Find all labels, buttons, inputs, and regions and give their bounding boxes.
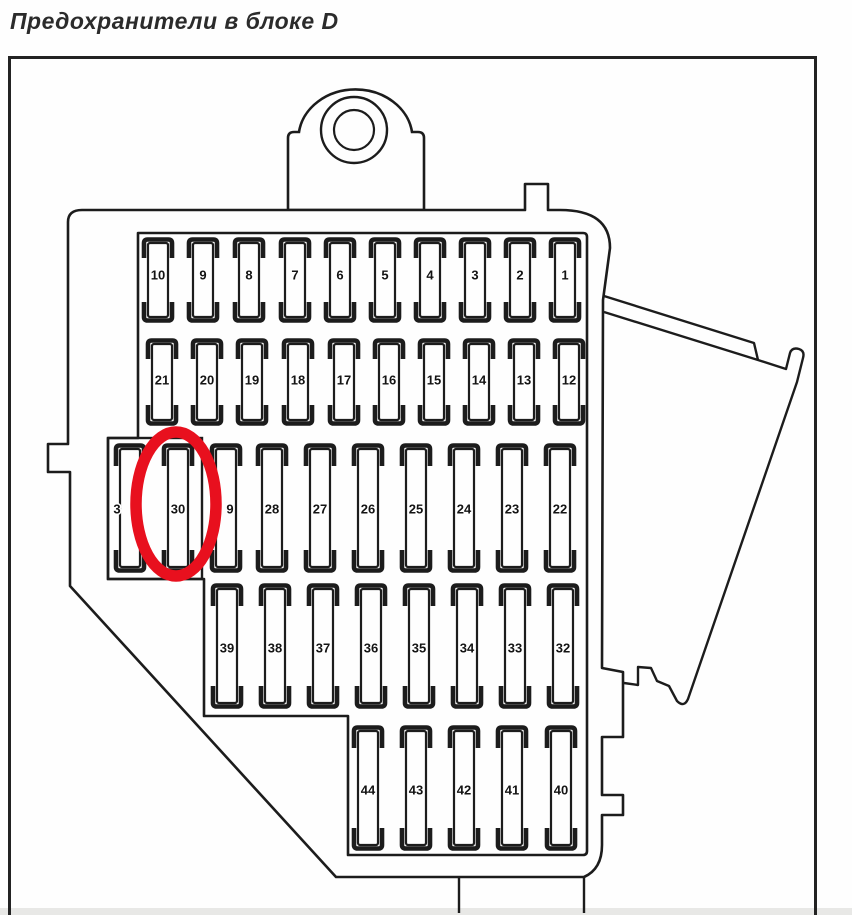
fuse-number: 3 [471, 268, 478, 283]
fuse-number: 3 [113, 502, 120, 517]
fuse-number: 17 [337, 373, 351, 388]
fuse-5: 5 [371, 240, 399, 321]
fuse-number: 6 [336, 268, 343, 283]
fuse-24: 24 [450, 446, 478, 571]
page-edge [0, 908, 852, 915]
fuse-3: 3 [461, 240, 489, 321]
fuse-number: 40 [554, 783, 568, 798]
fuse-number: 42 [457, 783, 471, 798]
fuse-number: 28 [265, 502, 279, 517]
fuse-7: 7 [281, 240, 309, 321]
latch-arm [604, 296, 804, 704]
fuse-13: 13 [510, 341, 538, 424]
fuse-number: 27 [313, 502, 327, 517]
fuse-number: 2 [516, 268, 523, 283]
fuse-number: 5 [381, 268, 388, 283]
manual-page: Предохранители в блоке D 109876543212120… [0, 0, 852, 915]
fuse-box-diagram: 1098765432121201918171615141312330928272… [0, 0, 852, 915]
fuse-number: 14 [472, 373, 487, 388]
fuse-number: 16 [382, 373, 396, 388]
fuse-number: 44 [361, 783, 376, 798]
fuse-number: 41 [505, 783, 519, 798]
fuse-number: 19 [245, 373, 259, 388]
fuse-30: 30 [164, 446, 192, 571]
fuse-number: 24 [457, 502, 472, 517]
fuse-40: 40 [547, 728, 575, 849]
fuse-35: 35 [405, 586, 433, 707]
fuse-4: 4 [416, 240, 444, 321]
fuse-15: 15 [420, 341, 448, 424]
fuse-number: 21 [155, 373, 169, 388]
fuse-number: 39 [220, 641, 234, 656]
fuse-34: 34 [453, 586, 481, 707]
fuse-36: 36 [357, 586, 385, 707]
fuse-41: 41 [498, 728, 526, 849]
fuse-number: 9 [226, 502, 233, 517]
fuse-27: 27 [306, 446, 334, 571]
fuse-42: 42 [450, 728, 478, 849]
fuse-44: 44 [354, 728, 382, 849]
fuse-18: 18 [284, 341, 312, 424]
fuse-number: 35 [412, 641, 426, 656]
fuse-39: 39 [213, 586, 241, 707]
fuse-20: 20 [193, 341, 221, 424]
fuse-number: 32 [556, 641, 570, 656]
fuse-number: 33 [508, 641, 522, 656]
fuse-21: 21 [148, 341, 176, 424]
fuse-number: 4 [426, 268, 434, 283]
fuse-23: 23 [498, 446, 526, 571]
fuse-12: 12 [555, 341, 583, 424]
fuse-25: 25 [402, 446, 430, 571]
fuse-6: 6 [326, 240, 354, 321]
fuse-28: 28 [258, 446, 286, 571]
fuse-16: 16 [375, 341, 403, 424]
bottom-connector [459, 877, 584, 913]
fuse-number: 30 [171, 502, 185, 517]
fuse-10: 10 [144, 240, 172, 321]
fuse-37: 37 [309, 586, 337, 707]
fuse-22: 22 [546, 446, 574, 571]
fuse-number: 36 [364, 641, 378, 656]
fuse-number: 23 [505, 502, 519, 517]
fuse-1: 1 [551, 240, 579, 321]
fuse-19: 19 [238, 341, 266, 424]
fuse-number: 26 [361, 502, 375, 517]
fuse-number: 37 [316, 641, 330, 656]
fuse-9: 9 [189, 240, 217, 321]
fuse-33: 33 [501, 586, 529, 707]
fuse-number: 10 [151, 268, 165, 283]
fuse-number: 1 [561, 268, 568, 283]
fuse-number: 38 [268, 641, 282, 656]
fuse-17: 17 [330, 341, 358, 424]
fuse-number: 8 [245, 268, 252, 283]
fuse-38: 38 [261, 586, 289, 707]
fuse-number: 43 [409, 783, 423, 798]
fuse-number: 22 [553, 502, 567, 517]
fuse-number: 9 [199, 268, 206, 283]
fuse-8: 8 [235, 240, 263, 321]
fuse-number: 15 [427, 373, 441, 388]
fuse-number: 25 [409, 502, 423, 517]
fuse-number: 7 [291, 268, 298, 283]
fuse-32: 32 [549, 586, 577, 707]
fuse-2: 2 [506, 240, 534, 321]
fuse-number: 34 [460, 641, 475, 656]
fuse-number: 20 [200, 373, 214, 388]
fuse-number: 18 [291, 373, 305, 388]
fuse-43: 43 [402, 728, 430, 849]
fuse-number: 12 [562, 373, 576, 388]
fuse-number: 13 [517, 373, 531, 388]
fuse-26: 26 [354, 446, 382, 571]
fuse-14: 14 [465, 341, 493, 424]
